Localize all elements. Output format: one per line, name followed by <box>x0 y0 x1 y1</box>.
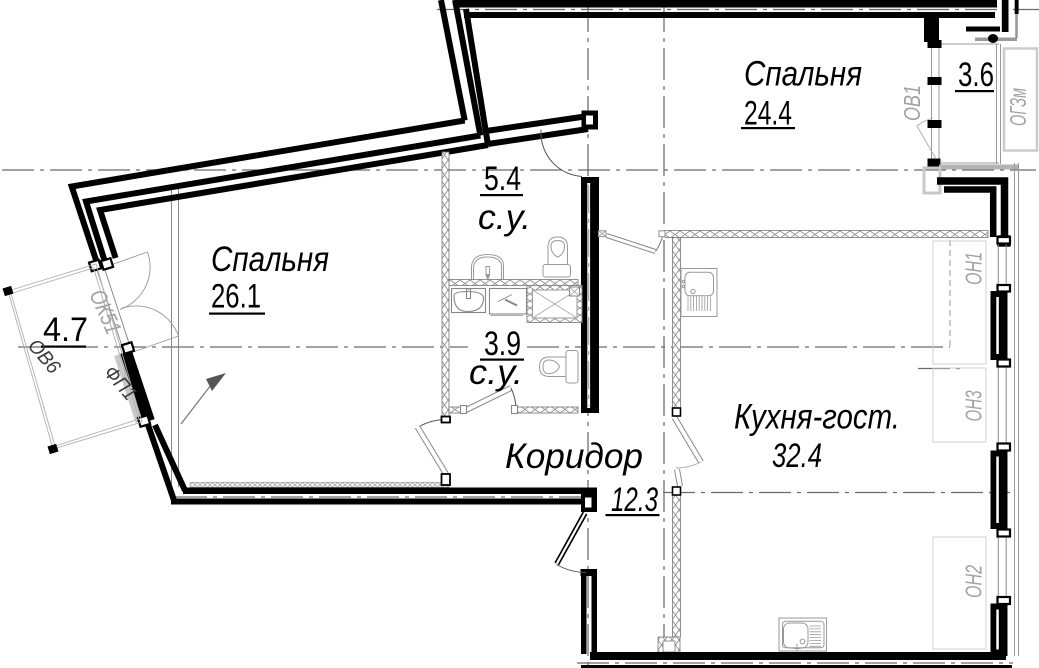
svg-text:3.6: 3.6 <box>958 56 994 94</box>
svg-text:Коридор: Коридор <box>505 437 643 476</box>
svg-text:Спальня: Спальня <box>744 55 862 94</box>
svg-text:Спальня: Спальня <box>211 240 329 279</box>
svg-text:32.4: 32.4 <box>772 437 822 475</box>
svg-text:ОН2: ОН2 <box>961 565 987 598</box>
svg-text:ОГЗм: ОГЗм <box>1005 88 1031 126</box>
svg-text:4.7: 4.7 <box>43 311 88 349</box>
svg-text:Кухня-гост.: Кухня-гост. <box>734 398 900 437</box>
svg-text:26.1: 26.1 <box>211 278 261 316</box>
svg-text:24.4: 24.4 <box>744 95 792 133</box>
svg-text:ОН1: ОН1 <box>961 252 987 285</box>
svg-text:5.4: 5.4 <box>484 160 521 198</box>
svg-text:с.у.: с.у. <box>478 198 531 237</box>
svg-text:ОН3: ОН3 <box>961 390 987 421</box>
svg-text:с.у.: с.у. <box>469 353 523 392</box>
svg-text:ОВ1: ОВ1 <box>899 85 925 121</box>
svg-text:12.3: 12.3 <box>611 481 658 519</box>
